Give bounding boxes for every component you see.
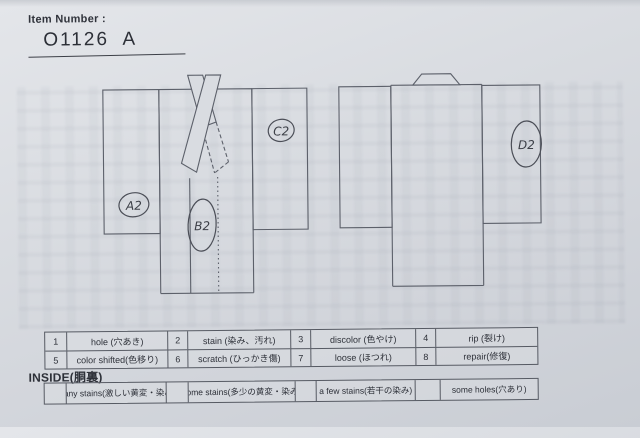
legend-label: stain (染み、汚れ) [187,330,290,349]
legend-label: loose (ほつれ) [310,347,415,366]
kimono-back-diagram [339,73,542,287]
annotation-c2: C2 [266,117,296,143]
legend-label: repair(修復) [435,346,537,365]
inside-option-label: some stains(多少の黄変・染み) [188,381,295,402]
annotation-a2-label: A2 [125,199,142,213]
legend-code: 6 [167,349,187,367]
paper-sheet: Item Number : O1126 A [0,0,640,438]
inside-checkbox-cell [45,383,66,403]
legend-label: color shifted(色移り) [66,349,167,368]
annotation-d2-label: D2 [518,138,535,152]
annotation-c2-label: C2 [273,124,289,138]
back-body-panel [391,84,484,286]
annotation-a2: A2 [117,191,150,219]
legend-label: rip (裂け) [435,328,537,347]
legend-code: 4 [415,329,435,347]
inside-checkbox-cell [295,381,316,401]
inside-option-label: a few stains(若干の染み) [316,380,415,401]
legend-code: 8 [415,347,435,365]
back-left-sleeve [339,86,392,227]
front-inner-edge-dotted [218,177,219,293]
annotation-b2-label: B2 [194,219,210,233]
back-collar [413,74,460,85]
back-right-sleeve [482,85,541,224]
legend-label: hole (穴あき) [66,331,167,350]
legend-code: 5 [45,350,66,368]
legend-label: scratch (ひっかき傷) [187,348,290,367]
photo-edge-shadow [0,0,640,7]
annotation-d2: D2 [510,120,542,167]
inside-option-label: some holes(穴あり) [440,379,538,400]
legend-code: 2 [167,331,187,349]
legend-code: 7 [290,348,310,366]
inside-option-label: many stains(激しい黄変・染み) [66,382,166,403]
legend-label: discolor (色やけ) [310,329,415,348]
inspection-sheet-photo: { "header": { "label": "Item Number :", … [0,0,640,427]
front-right-sleeve [252,88,308,230]
annotation-b2: B2 [187,198,218,252]
legend-code: 1 [45,332,66,350]
inside-checkbox-cell [415,380,440,400]
front-overlap-seam [190,178,191,293]
kimono-front-diagram [103,74,309,294]
defect-legend-table: 1 hole (穴あき) 2 stain (染み、汚れ) 3 discolor … [44,327,538,370]
legend-code: 3 [290,330,310,348]
inside-checkbox-cell [166,382,188,402]
